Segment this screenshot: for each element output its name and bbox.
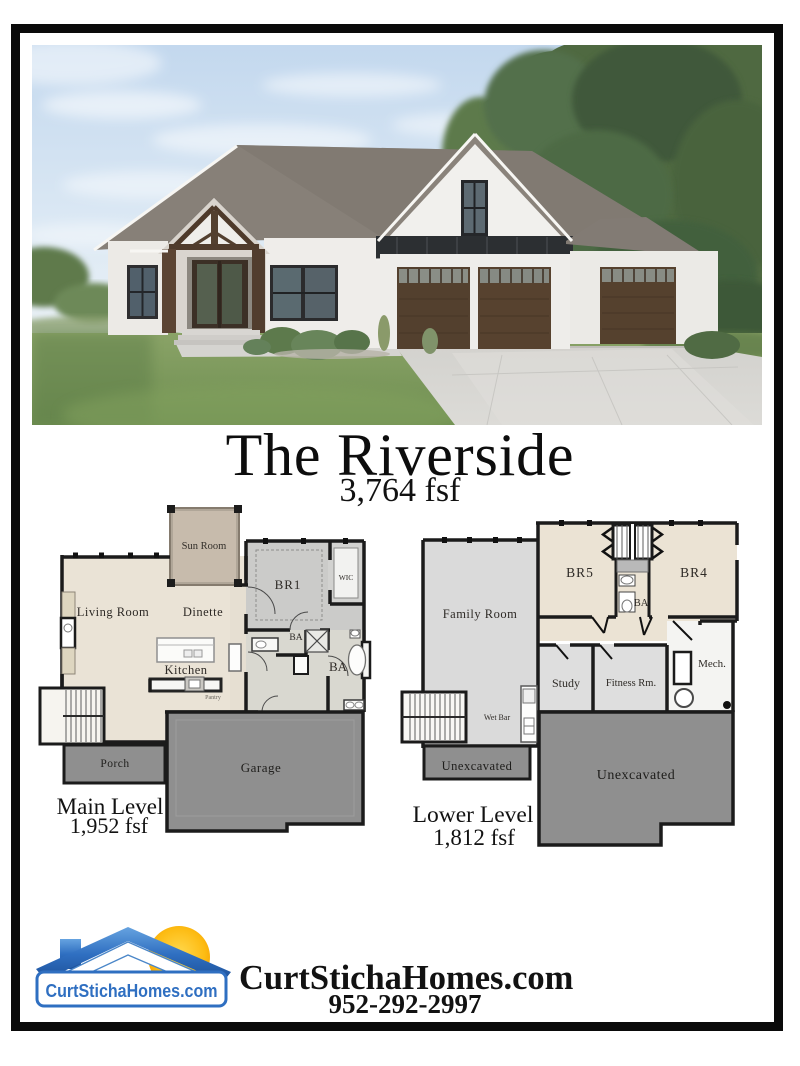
svg-text:Unexcavated: Unexcavated [442,759,513,773]
svg-text:BR5: BR5 [566,565,594,580]
svg-text:1,812 fsf: 1,812 fsf [433,825,515,850]
svg-text:Garage: Garage [241,760,282,775]
svg-text:Wet Bar: Wet Bar [484,713,511,722]
svg-text:BR1: BR1 [275,577,302,592]
svg-text:Fitness Rm.: Fitness Rm. [606,678,656,689]
svg-text:Porch: Porch [100,758,129,770]
svg-text:Kitchen: Kitchen [164,663,207,677]
svg-text:Study: Study [552,676,580,690]
svg-text:Sun Room: Sun Room [182,541,227,552]
svg-text:BR4: BR4 [680,565,708,580]
svg-text:Pantry: Pantry [205,695,221,701]
svg-text:Dinette: Dinette [183,605,223,619]
svg-text:BA: BA [289,633,302,643]
svg-text:Living Room: Living Room [77,605,150,619]
svg-text:BA: BA [634,598,649,609]
svg-text:Unexcavated: Unexcavated [597,768,676,783]
svg-text:WIC: WIC [339,573,354,582]
svg-text:1,952 fsf: 1,952 fsf [70,813,149,838]
svg-text:Mech.: Mech. [698,658,726,670]
svg-text:BA: BA [329,659,348,674]
svg-text:Family Room: Family Room [443,607,518,621]
